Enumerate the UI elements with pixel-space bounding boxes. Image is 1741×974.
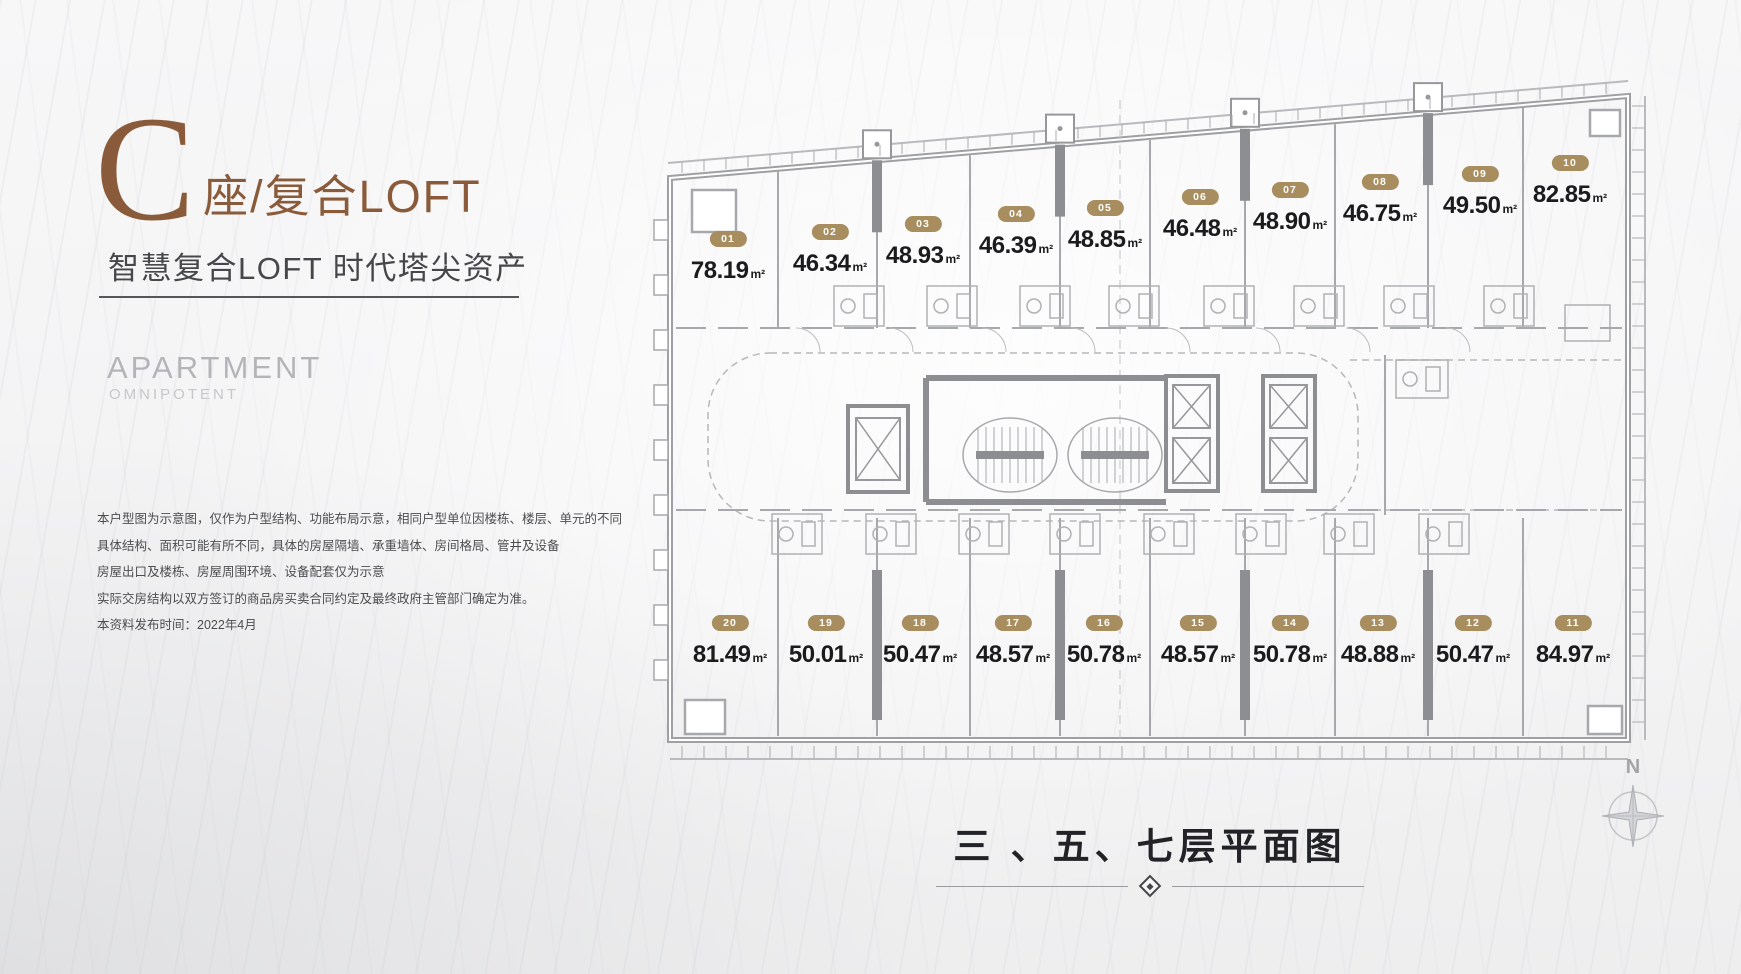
compass-rose-icon bbox=[1598, 781, 1668, 851]
unit-label: 2081.49m² bbox=[693, 615, 767, 669]
unit-area: 50.78m² bbox=[1067, 641, 1141, 669]
unit-area: 48.88m² bbox=[1341, 641, 1415, 669]
divider-line bbox=[1172, 886, 1364, 887]
area-unit: m² bbox=[1035, 651, 1050, 665]
floor-plan-caption: 三 、五、七层平面图 bbox=[850, 816, 1450, 870]
unit-number-badge: 12 bbox=[1454, 615, 1491, 631]
unit-area: 46.34m² bbox=[793, 250, 867, 278]
unit-number-badge: 04 bbox=[997, 206, 1034, 222]
unit-number-badge: 14 bbox=[1271, 615, 1308, 631]
unit-area: 82.85m² bbox=[1533, 181, 1607, 209]
area-unit: m² bbox=[1220, 651, 1235, 665]
compass-north-label: N bbox=[1598, 756, 1668, 779]
unit-area: 78.19m² bbox=[691, 257, 765, 285]
divider-line bbox=[936, 886, 1128, 887]
area-unit: m² bbox=[750, 267, 765, 281]
unit-label: 1850.47m² bbox=[883, 615, 957, 669]
unit-area: 84.97m² bbox=[1536, 641, 1610, 669]
building-letter: C bbox=[95, 110, 195, 229]
diamond-ornament-icon bbox=[1139, 875, 1162, 898]
unit-area: 81.49m² bbox=[693, 641, 767, 669]
english-subtitle: OMNIPOTENT bbox=[109, 386, 239, 403]
unit-number-badge: 17 bbox=[994, 615, 1031, 631]
unit-number-badge: 09 bbox=[1461, 166, 1498, 182]
unit-area: 50.01m² bbox=[789, 641, 863, 669]
unit-label: 1548.57m² bbox=[1161, 615, 1235, 669]
unit-area: 48.93m² bbox=[886, 242, 960, 270]
area-unit: m² bbox=[752, 651, 767, 665]
unit-number-badge: 05 bbox=[1086, 200, 1123, 216]
area-unit: m² bbox=[945, 252, 960, 266]
area-unit: m² bbox=[1400, 651, 1415, 665]
compass: N bbox=[1598, 756, 1668, 856]
area-unit: m² bbox=[1127, 236, 1142, 250]
unit-number-badge: 15 bbox=[1179, 615, 1216, 631]
area-unit: m² bbox=[1592, 191, 1607, 205]
unit-number-badge: 06 bbox=[1181, 189, 1218, 205]
unit-label: 0246.34m² bbox=[793, 224, 867, 278]
caption-divider bbox=[850, 878, 1450, 894]
unit-number-badge: 10 bbox=[1551, 155, 1588, 171]
unit-label: 0348.93m² bbox=[886, 216, 960, 270]
unit-area: 48.57m² bbox=[1161, 641, 1235, 669]
unit-number-badge: 03 bbox=[904, 216, 941, 232]
tagline-underline bbox=[99, 296, 519, 298]
area-unit: m² bbox=[942, 651, 957, 665]
area-unit: m² bbox=[852, 260, 867, 274]
unit-label: 0548.85m² bbox=[1068, 200, 1142, 254]
unit-number-badge: 19 bbox=[807, 615, 844, 631]
unit-label: 0846.75m² bbox=[1343, 174, 1417, 228]
unit-area: 46.75m² bbox=[1343, 200, 1417, 228]
building-title-suffix: 座/复合LOFT bbox=[203, 174, 482, 219]
unit-number-badge: 11 bbox=[1554, 615, 1591, 631]
area-unit: m² bbox=[1402, 210, 1417, 224]
disclaimer-line: 房屋出口及楼栋、房屋周围环境、设备配套仅为示意 bbox=[97, 559, 622, 586]
unit-label: 1650.78m² bbox=[1067, 615, 1141, 669]
unit-label: 1082.85m² bbox=[1533, 155, 1607, 209]
unit-label: 0178.19m² bbox=[691, 231, 765, 285]
unit-number-badge: 08 bbox=[1361, 174, 1398, 190]
area-unit: m² bbox=[1502, 202, 1517, 216]
unit-label: 0646.48m² bbox=[1163, 189, 1237, 243]
poster-page: C 座/复合LOFT 智慧复合LOFT 时代塔尖资产 APARTMENT OMN… bbox=[0, 0, 1741, 974]
unit-label: 1184.97m² bbox=[1536, 615, 1610, 669]
building-title: C 座/复合LOFT bbox=[95, 110, 482, 229]
unit-number-badge: 02 bbox=[811, 224, 848, 240]
unit-area: 48.57m² bbox=[976, 641, 1050, 669]
area-unit: m² bbox=[1038, 242, 1053, 256]
area-unit: m² bbox=[1222, 225, 1237, 239]
english-title: APARTMENT bbox=[107, 350, 322, 386]
unit-number-badge: 16 bbox=[1085, 615, 1122, 631]
area-unit: m² bbox=[848, 651, 863, 665]
area-unit: m² bbox=[1312, 218, 1327, 232]
unit-area: 46.48m² bbox=[1163, 215, 1237, 243]
unit-number-badge: 18 bbox=[901, 615, 938, 631]
unit-area: 50.78m² bbox=[1253, 641, 1327, 669]
unit-label: 0748.90m² bbox=[1253, 182, 1327, 236]
unit-label: 1250.47m² bbox=[1436, 615, 1510, 669]
unit-area: 49.50m² bbox=[1443, 192, 1517, 220]
unit-number-badge: 20 bbox=[711, 615, 748, 631]
unit-area: 48.90m² bbox=[1253, 208, 1327, 236]
area-unit: m² bbox=[1595, 651, 1610, 665]
unit-label: 0949.50m² bbox=[1443, 166, 1517, 220]
unit-label: 1950.01m² bbox=[789, 615, 863, 669]
disclaimer-line: 具体结构、面积可能有所不同，具体的房屋隔墙、承重墙体、房间格局、管井及设备 bbox=[97, 533, 622, 560]
area-unit: m² bbox=[1495, 651, 1510, 665]
disclaimer-block: 本户型图为示意图，仅作为户型结构、功能布局示意，相同户型单位因楼栋、楼层、单元的… bbox=[97, 506, 622, 639]
unit-number-badge: 07 bbox=[1271, 182, 1308, 198]
unit-area: 48.85m² bbox=[1068, 226, 1142, 254]
unit-label: 0446.39m² bbox=[979, 206, 1053, 260]
unit-number-badge: 01 bbox=[709, 231, 746, 247]
unit-number-badge: 13 bbox=[1359, 615, 1396, 631]
unit-label: 1748.57m² bbox=[976, 615, 1050, 669]
tagline: 智慧复合LOFT 时代塔尖资产 bbox=[108, 243, 528, 288]
area-unit: m² bbox=[1312, 651, 1327, 665]
area-unit: m² bbox=[1126, 651, 1141, 665]
disclaimer-line: 本资料发布时间：2022年4月 bbox=[97, 612, 622, 639]
unit-area: 50.47m² bbox=[883, 641, 957, 669]
unit-area: 46.39m² bbox=[979, 232, 1053, 260]
unit-area: 50.47m² bbox=[1436, 641, 1510, 669]
unit-label: 1450.78m² bbox=[1253, 615, 1327, 669]
disclaimer-line: 本户型图为示意图，仅作为户型结构、功能布局示意，相同户型单位因楼栋、楼层、单元的… bbox=[97, 506, 622, 533]
unit-label: 1348.88m² bbox=[1341, 615, 1415, 669]
disclaimer-line: 实际交房结构以双方签订的商品房买卖合同约定及最终政府主管部门确定为准。 bbox=[97, 586, 622, 613]
